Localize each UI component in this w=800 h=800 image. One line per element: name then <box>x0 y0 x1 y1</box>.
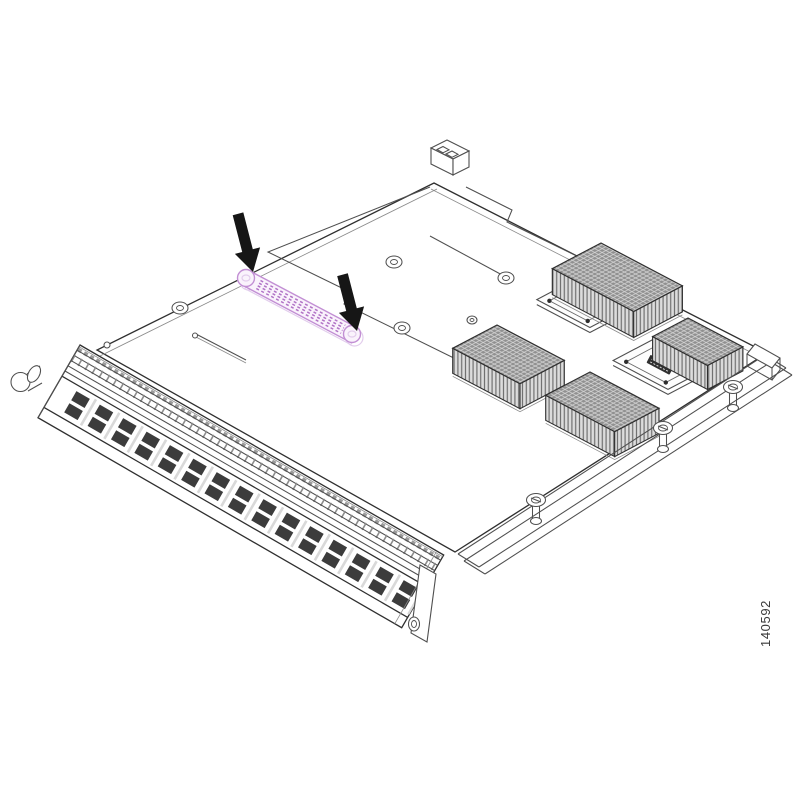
line-card-diagram: 140592 <box>0 0 800 800</box>
figure-number: 140592 <box>758 600 773 647</box>
connector-pad-left <box>238 270 255 287</box>
connector-pad-right <box>344 326 361 343</box>
illustration-canvas: 140592 <box>0 0 800 800</box>
